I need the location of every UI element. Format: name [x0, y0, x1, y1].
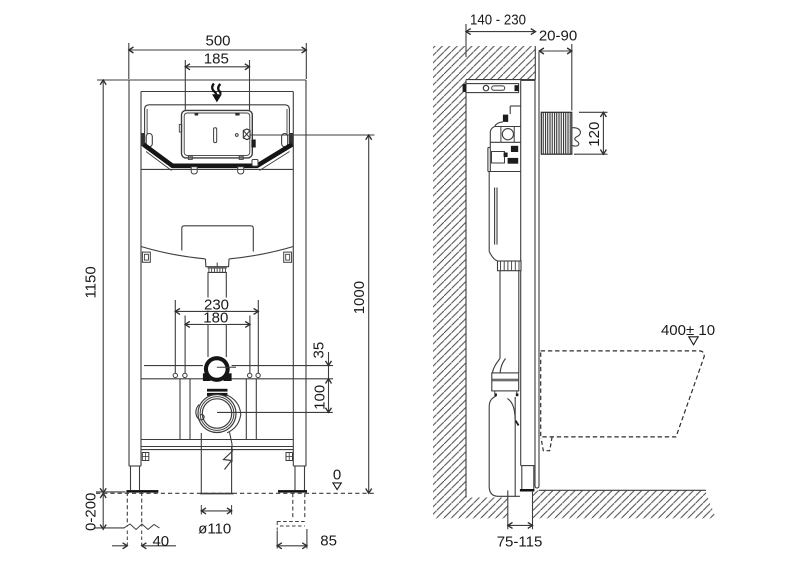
svg-text:1000: 1000 [351, 281, 368, 314]
svg-text:140 - 230: 140 - 230 [470, 12, 526, 29]
svg-text:0: 0 [333, 467, 341, 484]
svg-text:500: 500 [205, 33, 230, 50]
svg-text:0-200: 0-200 [82, 493, 99, 531]
svg-text:180: 180 [203, 310, 228, 327]
svg-text:35: 35 [311, 342, 328, 359]
svg-text:ø110: ø110 [198, 521, 231, 538]
svg-text:40: 40 [152, 533, 169, 550]
svg-text:100: 100 [311, 385, 328, 410]
svg-text:185: 185 [204, 51, 229, 68]
svg-text:75-115: 75-115 [497, 534, 543, 551]
svg-text:120: 120 [586, 122, 603, 147]
svg-text:85: 85 [320, 533, 337, 550]
svg-text:1150: 1150 [83, 266, 100, 298]
svg-text:20-90: 20-90 [539, 28, 577, 45]
